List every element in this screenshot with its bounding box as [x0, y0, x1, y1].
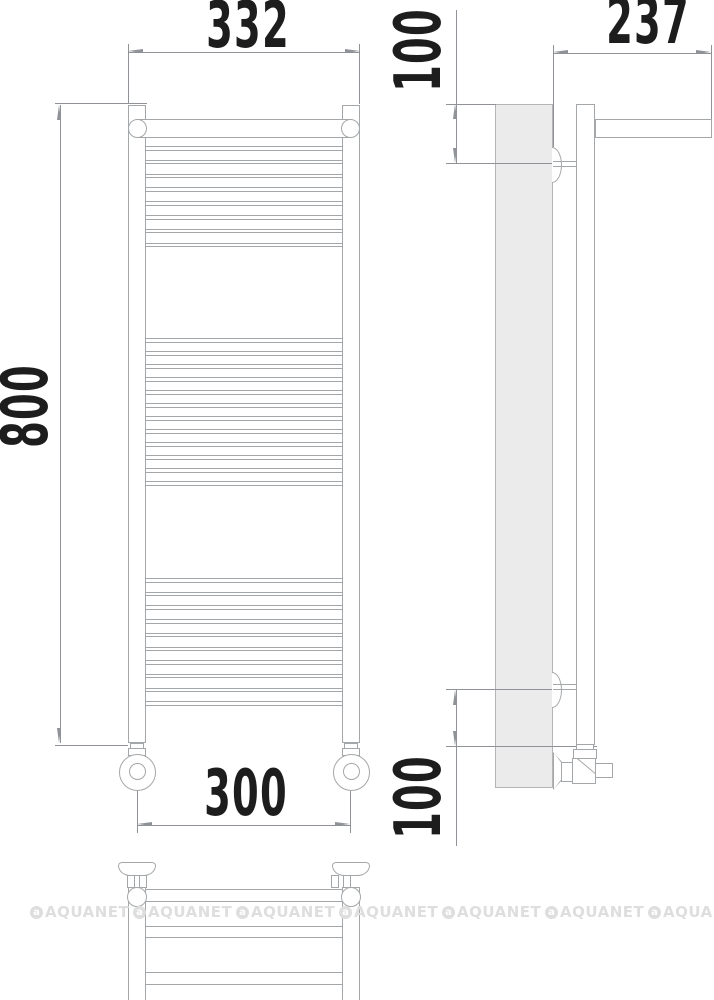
side-valve-body: [572, 758, 596, 784]
bottom-left-wall-plate: [118, 862, 156, 876]
towel-rung: [146, 688, 342, 693]
towel-rung: [146, 647, 342, 652]
extension-line: [55, 745, 128, 746]
dimension-line-100-bottom: [456, 690, 457, 846]
dimension-label-height: 800: [0, 364, 58, 448]
watermark-text: AQUANET: [457, 905, 541, 920]
towel-rung: [146, 174, 342, 179]
towel-rung: [146, 416, 342, 421]
towel-rung: [146, 243, 342, 248]
bottom-view-tube: [146, 926, 342, 938]
front-left-post: [128, 105, 146, 743]
dimension-label-depth: 237: [606, 0, 690, 54]
side-top-bracket-screw: [553, 161, 577, 167]
dimension-label-top-width: 332: [206, 0, 290, 58]
arrowhead-up-icon: [453, 690, 457, 705]
front-left-valve-center: [129, 763, 146, 780]
extension-line: [128, 44, 129, 104]
towel-rung: [146, 455, 342, 460]
aquanet-logo-icon: a: [236, 906, 249, 919]
arrowhead-down-icon: [453, 148, 457, 163]
towel-rung: [146, 701, 342, 706]
front-right-post: [342, 105, 360, 743]
extension-line: [350, 791, 351, 833]
towel-rung: [146, 619, 342, 624]
towel-rung: [146, 660, 342, 665]
front-right-valve-center: [343, 763, 360, 780]
watermark-text: AQUANET: [251, 905, 335, 920]
watermark: aAQUANET: [236, 904, 313, 921]
towel-rung: [146, 429, 342, 434]
watermark: aAQUANET: [545, 904, 622, 921]
dimension-label-bottom-offset: 100: [387, 755, 451, 839]
towel-rung: [146, 187, 342, 192]
arrowhead-left-icon: [553, 50, 568, 54]
towel-rung: [146, 338, 342, 343]
aquanet-logo-icon: a: [442, 906, 455, 919]
front-top-bar: [137, 119, 351, 138]
arrowhead-up-icon: [57, 105, 61, 120]
towel-rung: [146, 633, 342, 638]
technical-drawing-canvas: 332 800 300 237 100 100: [0, 0, 714, 1000]
towel-rung: [146, 351, 342, 356]
side-bottom-bracket-screw: [553, 684, 577, 690]
aquanet-logo-icon: a: [648, 906, 661, 919]
arrowhead-left-icon: [137, 822, 152, 826]
side-post: [576, 104, 595, 745]
arrowhead-left-icon: [128, 49, 143, 53]
side-valve-outlet: [595, 763, 613, 778]
bottom-view-tube: [146, 972, 342, 985]
extension-line: [137, 791, 138, 833]
watermark-row: aAQUANETaAQUANETaAQUANETaAQUANETaAQUANET…: [30, 904, 714, 921]
dimension-label-bottom-width: 300: [204, 762, 288, 826]
bottom-right-wall-plate: [332, 862, 370, 876]
extension-line: [711, 45, 712, 120]
arrowhead-right-icon: [696, 50, 711, 54]
arrowhead-up-icon: [453, 104, 457, 119]
watermark-text: AQUANET: [663, 905, 714, 920]
watermark: aAQUANET: [339, 904, 416, 921]
bottom-view-tube: [146, 889, 342, 902]
towel-rung: [146, 390, 342, 395]
watermark: aAQUANET: [648, 904, 714, 921]
towel-rung: [146, 468, 342, 473]
dimension-label-top-offset: 100: [387, 8, 451, 92]
aquanet-logo-icon: a: [30, 906, 43, 919]
aquanet-logo-icon: a: [339, 906, 352, 919]
bottom-left-bracket-stem: [139, 875, 147, 888]
towel-rung: [146, 229, 342, 234]
watermark-text: AQUANET: [148, 905, 232, 920]
dimension-line-100-top: [456, 10, 457, 163]
arrowhead-down-icon: [453, 731, 457, 746]
towel-rung: [146, 403, 342, 408]
towel-rung: [146, 578, 342, 583]
watermark-text: AQUANET: [354, 905, 438, 920]
towel-rung: [146, 377, 342, 382]
side-bottom-bracket: [552, 672, 562, 708]
bottom-right-bracket-stem: [331, 875, 339, 888]
towel-rung: [146, 201, 342, 206]
extension-line: [553, 45, 554, 147]
towel-rung: [146, 364, 342, 369]
front-top-right-pivot: [341, 119, 360, 138]
aquanet-logo-icon: a: [133, 906, 146, 919]
arrowhead-down-icon: [57, 728, 61, 743]
arrowhead-right-icon: [335, 822, 350, 826]
towel-rung: [146, 674, 342, 679]
towel-rung: [146, 160, 342, 165]
extension-line: [446, 163, 560, 164]
watermark-text: AQUANET: [45, 905, 129, 920]
side-top-shelf-bar: [595, 119, 712, 138]
extension-line: [446, 689, 552, 690]
valve-handle-line: [572, 758, 596, 781]
watermark: aAQUANET: [30, 904, 107, 921]
towel-rung: [146, 442, 342, 447]
towel-rung: [146, 215, 342, 220]
watermark: aAQUANET: [442, 904, 519, 921]
front-top-left-pivot: [128, 119, 147, 138]
arrowhead-right-icon: [345, 49, 360, 53]
aquanet-logo-icon: a: [545, 906, 558, 919]
towel-rung: [146, 592, 342, 597]
side-wall-section: [495, 104, 553, 788]
bottom-left-bracket-stem: [127, 875, 135, 888]
extension-line: [359, 44, 360, 104]
extension-line: [55, 103, 147, 104]
towel-rung: [146, 146, 342, 151]
watermark-text: AQUANET: [560, 905, 644, 920]
extension-line: [446, 746, 597, 747]
towel-rung: [146, 605, 342, 610]
towel-rung: [146, 481, 342, 486]
watermark: aAQUANET: [133, 904, 210, 921]
bottom-right-bracket-stem: [343, 875, 351, 888]
